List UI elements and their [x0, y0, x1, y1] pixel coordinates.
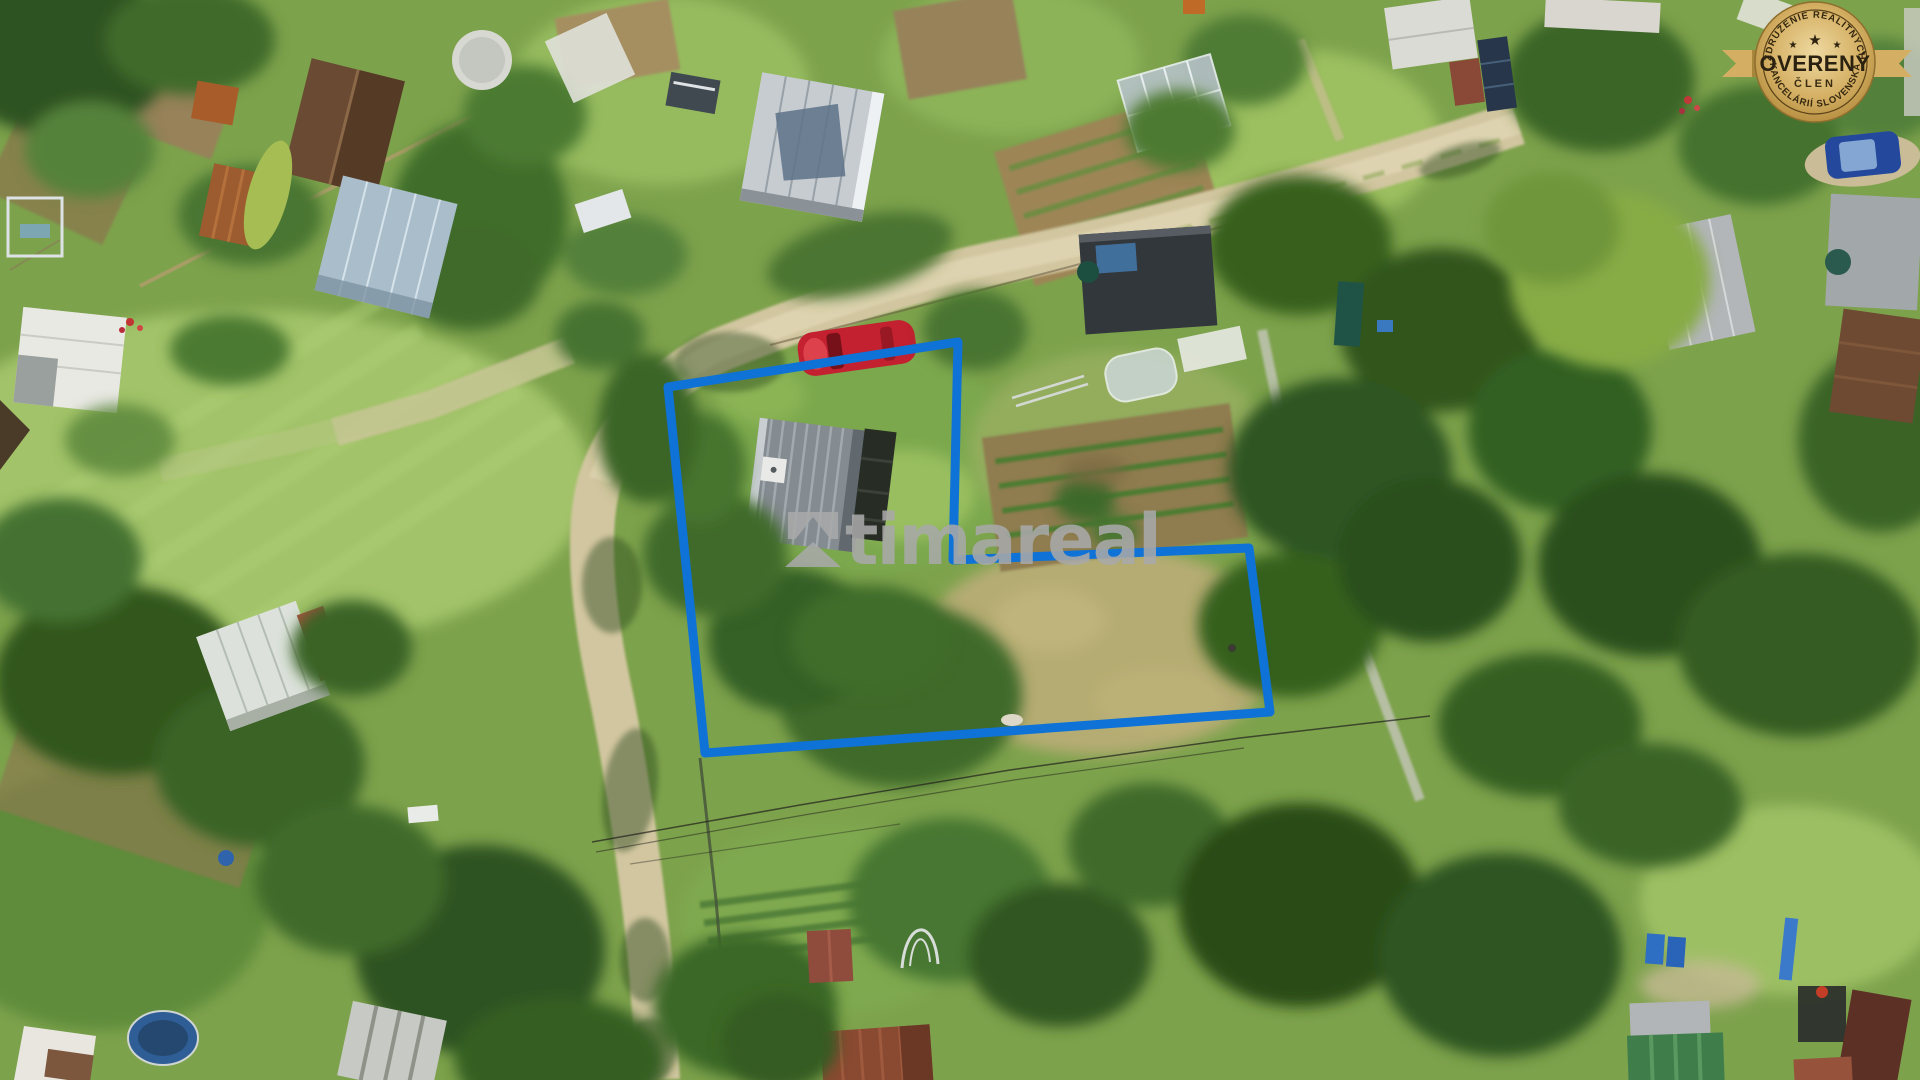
trampoline-pool [128, 1011, 198, 1065]
dark-roof-house [1079, 226, 1218, 335]
blue-ball [218, 850, 234, 866]
aerial-photo-canvas: timareal ZDRUŽENIE REALITNÝCH KANCELÁRIÍ… [0, 0, 1920, 1080]
white-table [407, 805, 438, 824]
badge-title: OVERENÝ [1759, 51, 1870, 76]
metal-roof-house-top [740, 72, 885, 222]
blue-item [1377, 320, 1393, 332]
blue-bin [1645, 933, 1665, 964]
green-water-tank [1077, 261, 1099, 283]
badge-star-icon: ★ [1833, 40, 1842, 51]
white-roof-cabin-left [13, 307, 126, 413]
badge-star-icon: ★ [1808, 31, 1821, 49]
teal-tank [1334, 281, 1364, 347]
aerial-photo: timareal ZDRUŽENIE REALITNÝCH KANCELÁRIÍ… [0, 0, 1920, 1080]
watermark-text: timareal [845, 499, 1160, 581]
badge-member-text: ČLEN [1794, 77, 1836, 90]
blue-bin [1666, 936, 1686, 967]
badge-star-icon: ★ [1789, 40, 1798, 51]
round-pool [452, 30, 512, 90]
